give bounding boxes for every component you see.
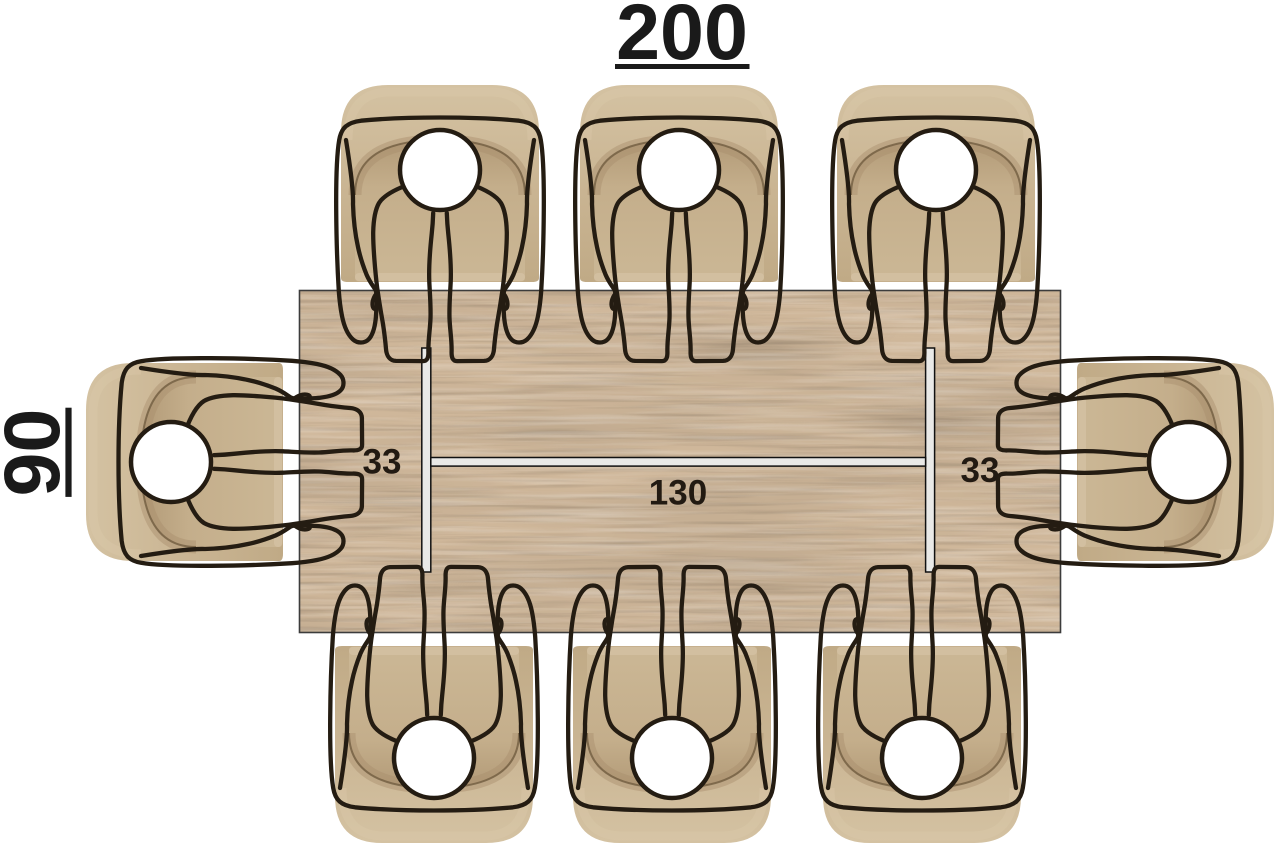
svg-text:33: 33 [961,451,1000,490]
svg-text:33: 33 [363,443,402,482]
svg-text:90: 90 [0,409,76,497]
svg-text:130: 130 [649,474,707,513]
